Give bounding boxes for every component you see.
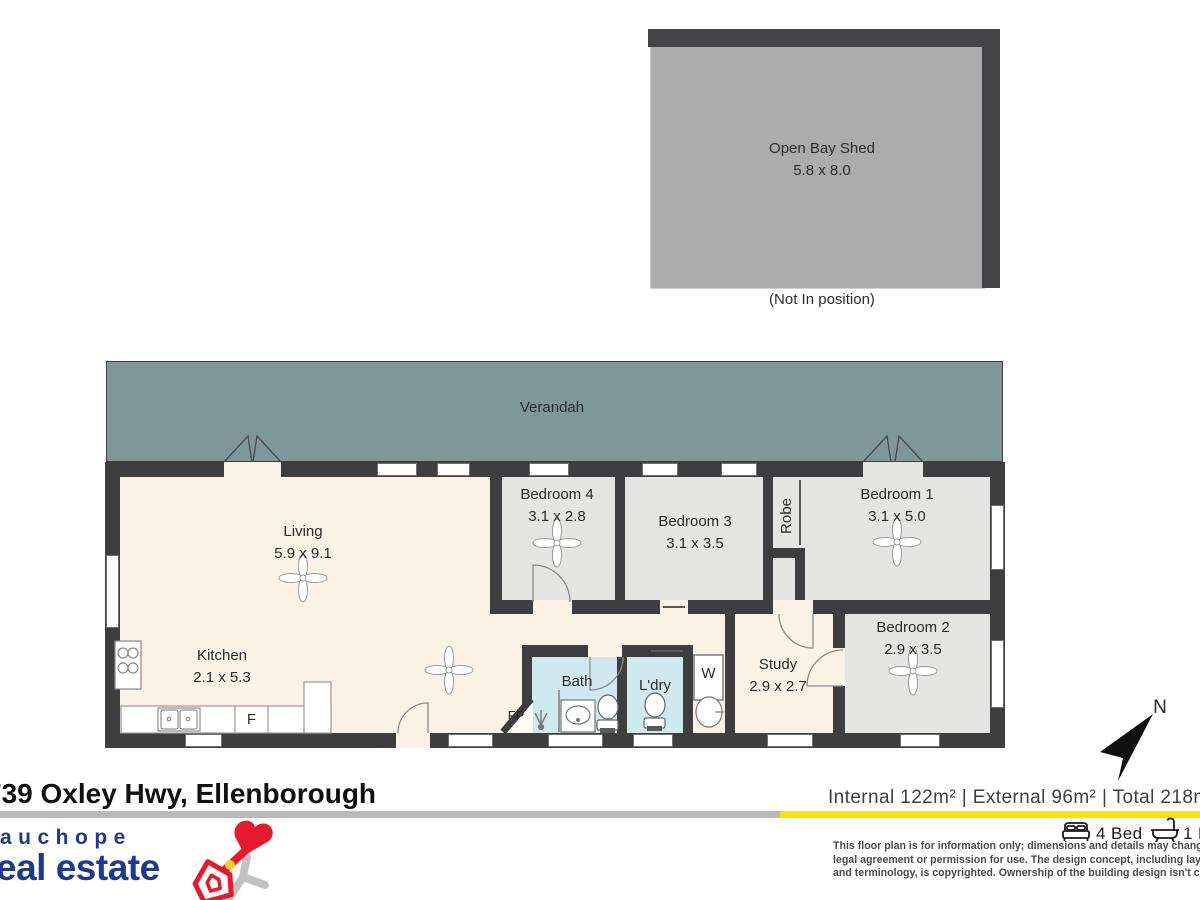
vanity [561, 700, 595, 732]
room-dims: 3.1 x 3.5 [630, 533, 760, 555]
room-dims: 2.1 x 5.3 [157, 667, 287, 689]
floor-plan-page: Open Bay Shed 5.8 x 8.0 (Not In position… [0, 0, 1200, 900]
plan-linework [0, 0, 1200, 900]
room-label-bed4: Bedroom 4 3.1 x 2.8 [492, 484, 622, 528]
room-label-laundry: L'dry [610, 675, 700, 697]
room-name: Bedroom 4 [520, 486, 593, 503]
laundry-tub [696, 697, 724, 727]
room-label-kitchen: Kitchen 2.1 x 5.3 [157, 645, 287, 689]
room-dims: 3.1 x 2.8 [492, 506, 622, 528]
room-label-bed1: Bedroom 1 3.1 x 5.0 [832, 484, 962, 528]
robe-label: Robe [776, 486, 798, 546]
room-name: Study [759, 656, 797, 673]
room-label-bath: Bath [532, 671, 622, 693]
disclaimer-line: legal agreement or permission for use. T… [833, 854, 1200, 868]
room-label-bed3: Bedroom 3 3.1 x 3.5 [630, 511, 760, 555]
room-label-bed2: Bedroom 2 2.9 x 3.5 [848, 617, 978, 661]
toilet-laundry [644, 693, 665, 731]
ceiling-fan-living-2 [425, 646, 473, 694]
compass-label: N [1148, 697, 1172, 719]
disclaimer-line: This floor plan is for information only;… [833, 840, 1200, 854]
disclaimer-line: and terminology, is copyrighted. Ownersh… [833, 867, 1200, 881]
fridge-label: F [235, 709, 268, 731]
bed-icon [1061, 820, 1091, 842]
shower [535, 690, 559, 732]
north-arrow-icon [1100, 714, 1153, 781]
agency-logo-icon [185, 815, 285, 900]
room-dims: 2.9 x 2.7 [713, 676, 843, 698]
room-name: Living [283, 523, 322, 540]
divider-grey [0, 811, 780, 818]
room-name: Bedroom 3 [658, 513, 731, 530]
room-label-living: Living 5.9 x 9.1 [238, 521, 368, 565]
fireplace-label: FP [503, 708, 529, 723]
disclaimer-text: This floor plan is for information only;… [833, 840, 1200, 881]
property-address: 739 Oxley Hwy, Ellenborough [0, 778, 376, 810]
french-doors-bed1 [863, 436, 923, 462]
agency-logo-text-bottom: eal estate [0, 847, 160, 889]
kitchen-sink [158, 708, 200, 731]
room-name: Bedroom 2 [876, 619, 949, 636]
door-arc-back-door [398, 703, 428, 733]
toilet-bath [597, 695, 618, 733]
french-doors-living [224, 436, 281, 462]
room-name: Bedroom 1 [860, 486, 933, 503]
divider-yellow [780, 811, 1200, 818]
room-name: Kitchen [197, 647, 247, 664]
washer-label: W [694, 663, 723, 685]
room-label-study: Study 2.9 x 2.7 [713, 654, 843, 698]
door-arc-study [779, 614, 813, 648]
room-dims: 5.9 x 9.1 [238, 543, 368, 565]
room-dims: 2.9 x 3.5 [848, 639, 978, 661]
area-summary: Internal 122m² | External 96m² | Total 2… [828, 787, 1200, 809]
door-arc-bed4 [533, 565, 570, 602]
room-dims: 3.1 x 5.0 [832, 506, 962, 528]
stove [115, 641, 141, 689]
kitchen-counter [121, 682, 331, 733]
